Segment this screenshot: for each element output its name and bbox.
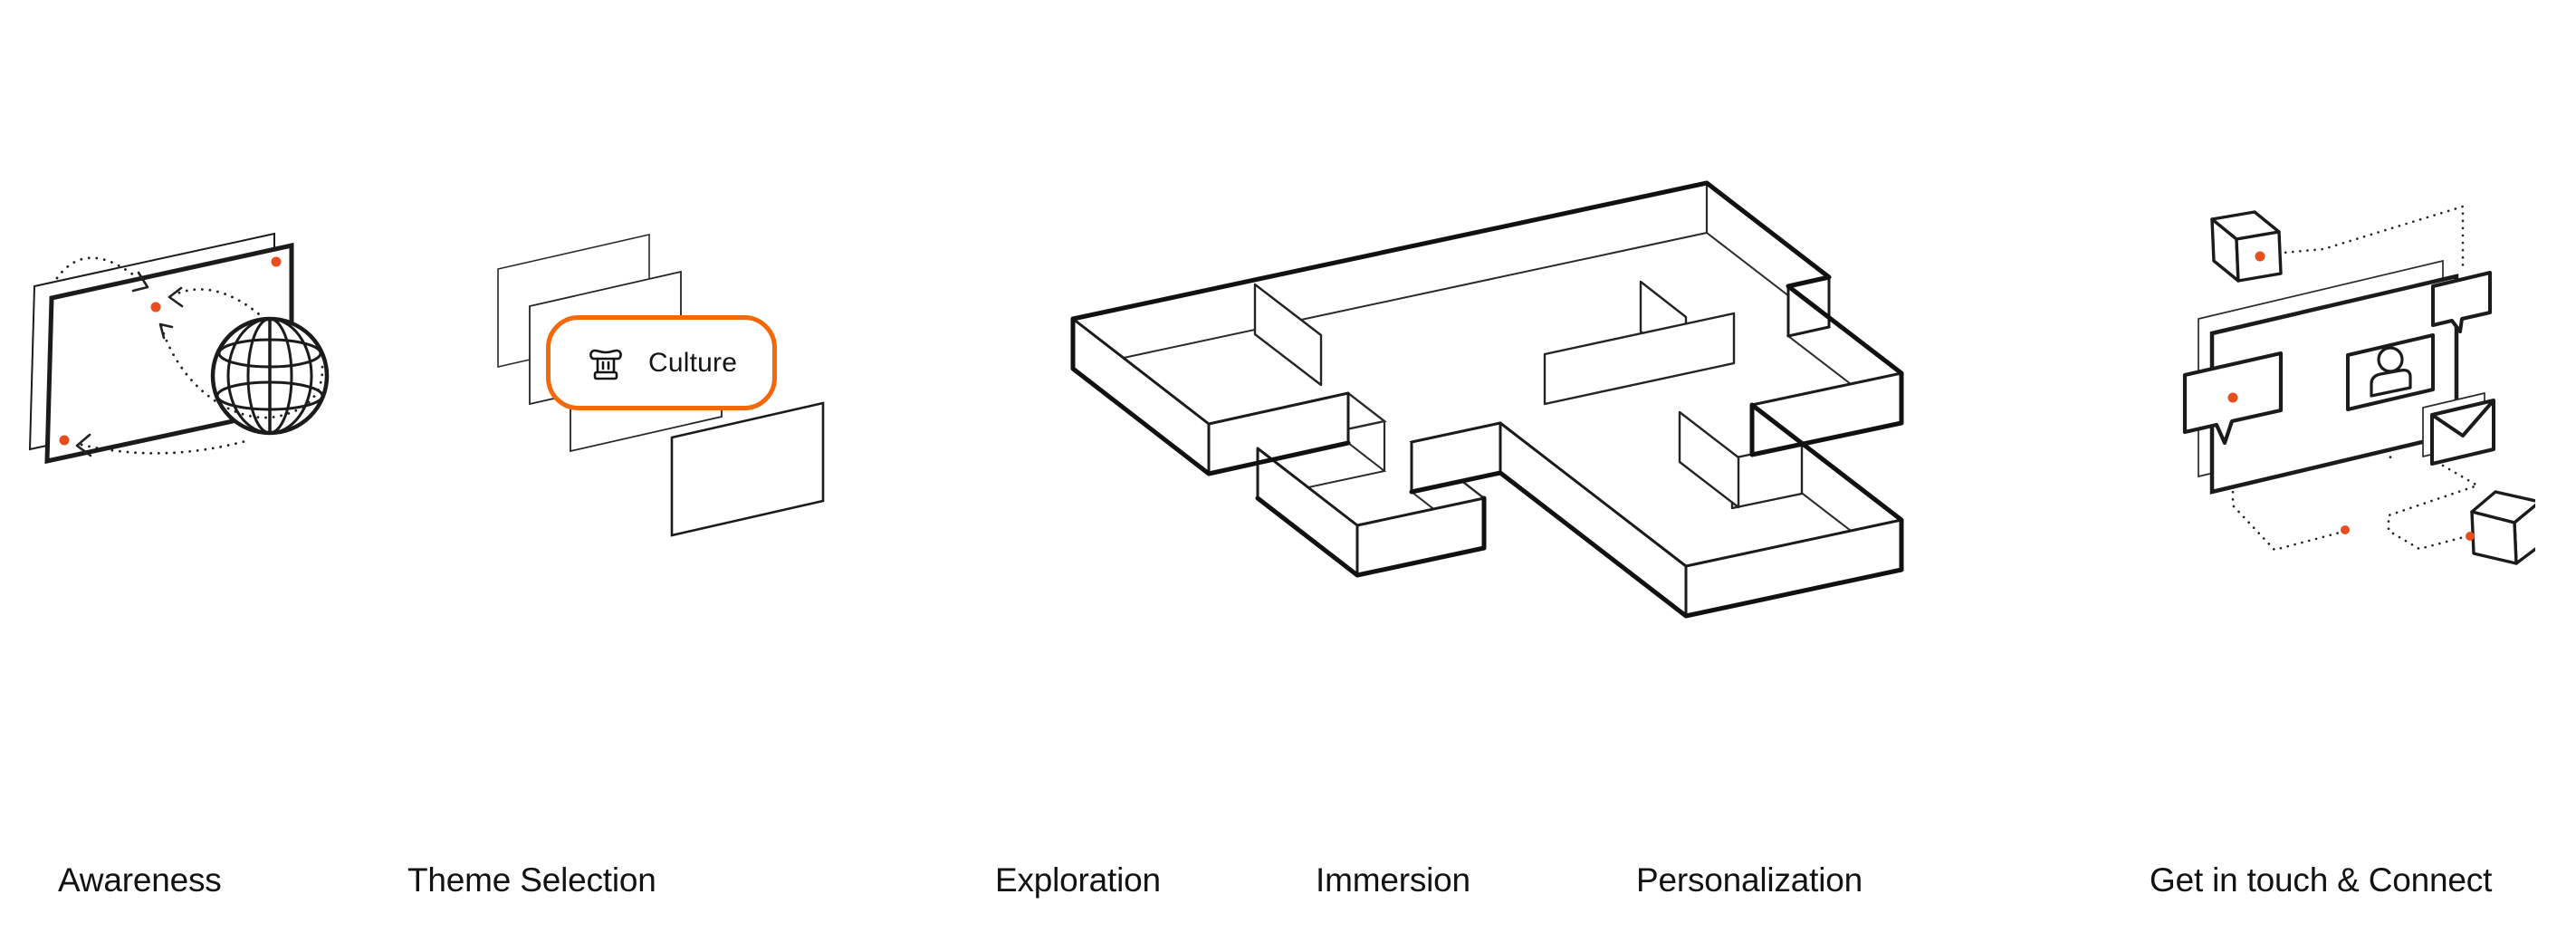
person-icon [2379, 348, 2402, 371]
stage-label-immersion: Immersion [1316, 861, 1470, 900]
maze-illustration [1041, 163, 1910, 688]
cube-icon [2212, 212, 2281, 281]
museum-column-icon [587, 344, 625, 382]
stage-label-theme-selection: Theme Selection [407, 861, 656, 900]
culture-theme-tag: Culture [546, 315, 777, 410]
stage-label-get-in-touch: Get in touch & Connect [2150, 861, 2492, 900]
globe-icon [213, 319, 327, 433]
journey-diagram: Culture [0, 0, 2576, 952]
culture-tag-label: Culture [648, 348, 737, 379]
connect-illustration [2101, 172, 2535, 607]
stage-label-exploration: Exploration [995, 861, 1161, 900]
cube-icon [2472, 492, 2535, 563]
awareness-illustration [18, 217, 380, 489]
stage-label-personalization: Personalization [1636, 861, 1863, 900]
stage-label-awareness: Awareness [58, 861, 222, 900]
